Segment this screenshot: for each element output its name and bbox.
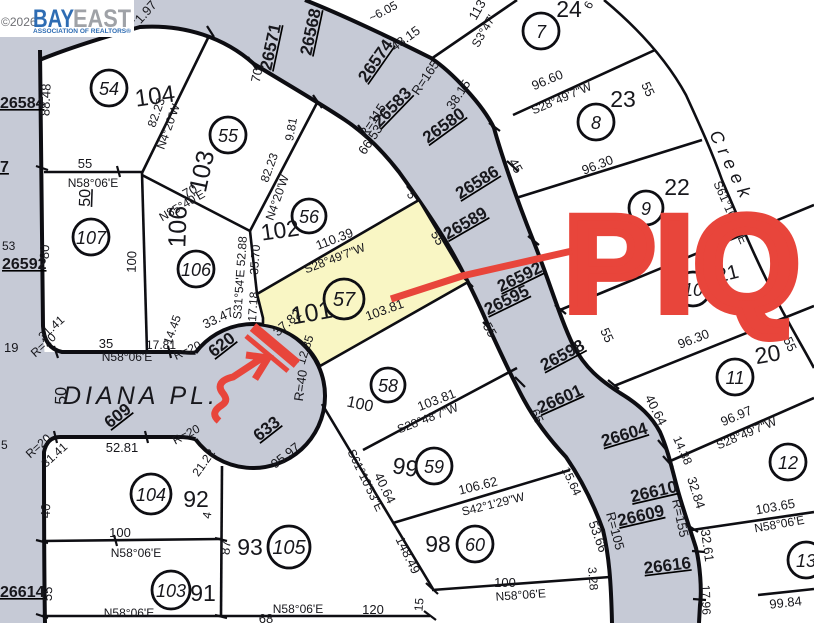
svg-text:N58°06'E: N58°06'E: [104, 606, 154, 620]
svg-text:87: 87: [217, 540, 233, 556]
svg-text:15: 15: [411, 597, 426, 612]
svg-text:N58°06'E: N58°06'E: [68, 176, 118, 190]
svg-text:N58°06'E: N58°06'E: [102, 350, 152, 364]
svg-text:70: 70: [248, 66, 266, 83]
svg-text:55: 55: [218, 126, 239, 146]
svg-text:19: 19: [4, 340, 18, 355]
svg-text:107: 107: [76, 228, 107, 248]
svg-text:35: 35: [99, 336, 113, 351]
svg-text:ASSOCIATION OF REALTORS®: ASSOCIATION OF REALTORS®: [33, 28, 131, 35]
svg-text:92: 92: [183, 486, 209, 512]
svg-text:56: 56: [299, 207, 320, 227]
svg-text:59: 59: [424, 457, 444, 477]
svg-text:106: 106: [181, 260, 212, 280]
svg-text:100: 100: [124, 251, 140, 273]
svg-text:98: 98: [425, 531, 451, 557]
svg-text:68: 68: [259, 611, 273, 623]
svg-text:91: 91: [190, 580, 216, 606]
svg-text:©2026: ©2026: [1, 15, 37, 29]
svg-text:80: 80: [37, 244, 52, 259]
svg-text:12: 12: [778, 453, 798, 473]
svg-text:35.70: 35.70: [247, 244, 263, 275]
svg-text:105: 105: [272, 537, 306, 559]
svg-text:7: 7: [0, 159, 9, 176]
svg-text:13: 13: [796, 551, 814, 571]
svg-text:24: 24: [556, 0, 582, 22]
svg-text:N58°06'E: N58°06'E: [273, 602, 323, 616]
svg-text:55: 55: [40, 586, 55, 601]
svg-text:DIANA PL.: DIANA PL.: [63, 382, 219, 410]
svg-text:99: 99: [391, 452, 421, 482]
svg-text:11: 11: [726, 368, 745, 388]
svg-text:PIQ: PIQ: [564, 188, 800, 341]
svg-text:54: 54: [99, 79, 119, 99]
svg-text:100: 100: [109, 525, 131, 540]
svg-text:57: 57: [333, 289, 356, 311]
svg-text:17.18: 17.18: [245, 291, 261, 322]
svg-text:50: 50: [53, 387, 71, 405]
svg-text:50: 50: [77, 189, 95, 207]
svg-text:120: 120: [362, 602, 384, 617]
svg-text:58: 58: [378, 376, 398, 396]
svg-text:52.81: 52.81: [106, 440, 139, 455]
svg-text:88.48: 88.48: [37, 83, 53, 116]
svg-text:23: 23: [610, 86, 636, 112]
svg-text:N58°06'E: N58°06'E: [111, 546, 161, 560]
svg-text:26614: 26614: [0, 584, 45, 601]
svg-text:17.96: 17.96: [698, 585, 713, 616]
svg-text:104: 104: [136, 485, 166, 505]
svg-text:7: 7: [536, 22, 547, 42]
svg-text:8: 8: [591, 113, 601, 133]
svg-text:20: 20: [753, 339, 783, 369]
svg-text:60: 60: [465, 535, 485, 555]
svg-text:103: 103: [156, 581, 186, 601]
svg-text:93: 93: [237, 534, 263, 560]
svg-text:3.28: 3.28: [585, 566, 601, 591]
svg-text:55: 55: [78, 156, 92, 171]
svg-text:40: 40: [38, 503, 53, 518]
svg-text:5: 5: [1, 438, 8, 452]
svg-text:53: 53: [2, 239, 16, 253]
